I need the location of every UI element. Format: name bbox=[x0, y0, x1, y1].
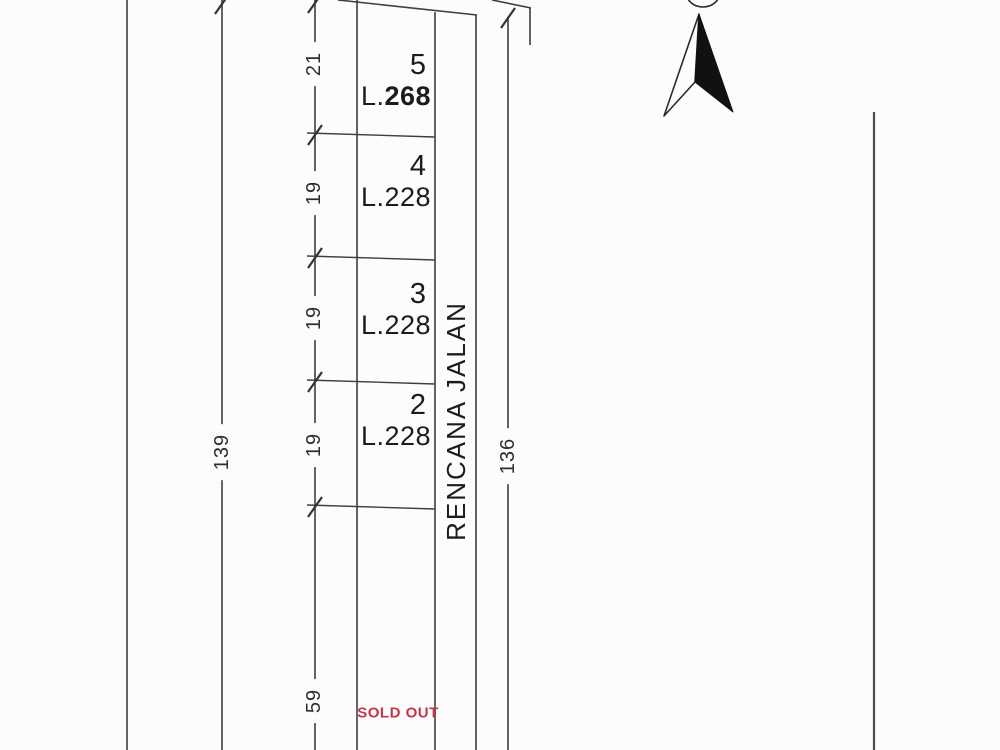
plot-boundary-5-4 bbox=[307, 133, 435, 137]
plot-5-area-prefix: L. bbox=[361, 81, 385, 111]
drawing-lines bbox=[0, 0, 1000, 750]
dimension-label-segment-top: 21 bbox=[302, 42, 326, 86]
dimension-label-left-total: 139 bbox=[210, 424, 234, 480]
plot-3-label: 3 L.228 bbox=[357, 279, 435, 339]
plot-2-area: L.228 bbox=[357, 423, 435, 450]
plot-4-label: 4 L.228 bbox=[357, 151, 435, 211]
road-name-label: RENCANA JALAN bbox=[443, 301, 469, 541]
top-boundary-slant-fragment bbox=[492, 0, 531, 8]
plot-5-area-value: 268 bbox=[384, 81, 431, 111]
north-arrow-right-wing bbox=[695, 14, 733, 112]
plot-3-area: L.228 bbox=[357, 312, 435, 339]
dimension-label-right-total: 136 bbox=[496, 428, 520, 484]
plot-3-number: 3 bbox=[357, 279, 435, 309]
plot-3-area-value: 228 bbox=[384, 310, 431, 340]
plot-4-area-prefix: L. bbox=[361, 182, 385, 212]
top-boundary-slant bbox=[338, 0, 477, 15]
plot-2-area-value: 228 bbox=[384, 421, 431, 451]
north-arrow-left-wing bbox=[664, 14, 699, 116]
plot-2-area-prefix: L. bbox=[361, 421, 385, 451]
north-arrow-icon bbox=[640, 0, 800, 130]
north-arrow-circle bbox=[686, 0, 720, 7]
dimension-label-segment-3: 19 bbox=[302, 296, 326, 340]
plot-3-area-prefix: L. bbox=[361, 310, 385, 340]
sold-out-badge: SOLD OUT bbox=[357, 705, 439, 722]
plot-4-area-value: 228 bbox=[384, 182, 431, 212]
plot-5-area: L.268 bbox=[357, 83, 435, 110]
dimension-label-segment-4: 19 bbox=[302, 423, 326, 467]
site-plan-drawing: 21 19 19 19 59 139 136 5 L.268 4 L.228 3… bbox=[0, 0, 1000, 750]
plot-5-number: 5 bbox=[357, 50, 435, 80]
plot-boundary-2-1 bbox=[307, 505, 435, 509]
plot-boundary-4-3 bbox=[307, 256, 435, 260]
plot-4-number: 4 bbox=[357, 151, 435, 181]
plot-2-number: 2 bbox=[357, 390, 435, 420]
dimension-label-segment-bottom: 59 bbox=[302, 679, 326, 723]
plot-boundary-3-2 bbox=[307, 380, 435, 384]
plot-2-label: 2 L.228 bbox=[357, 390, 435, 450]
plot-4-area: L.228 bbox=[357, 184, 435, 211]
plot-5-label: 5 L.268 bbox=[357, 50, 435, 110]
dimension-label-segment-2: 19 bbox=[302, 171, 326, 215]
